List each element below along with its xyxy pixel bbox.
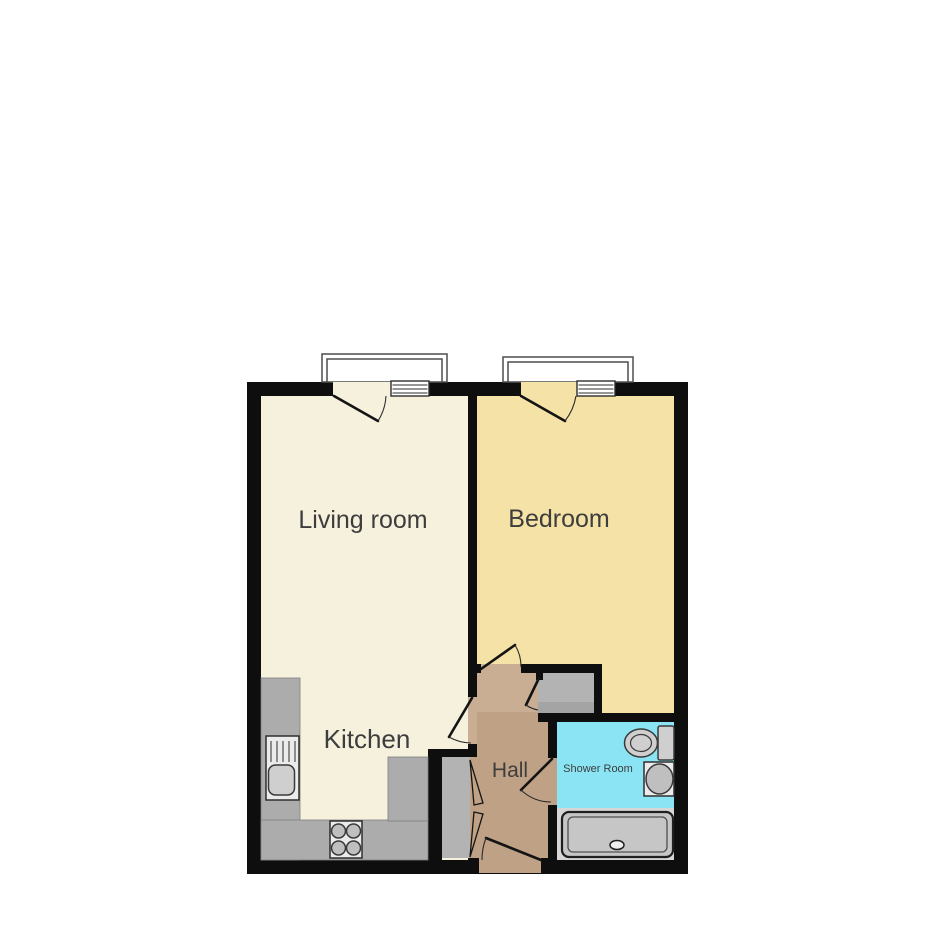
toilet bbox=[625, 726, 675, 760]
bedroom-nook-floor bbox=[602, 666, 674, 713]
kitchen-sink bbox=[266, 736, 299, 800]
shower-room-label: Shower Room bbox=[563, 763, 633, 775]
floorplan-page: Living room Bedroom Kitchen Hall Shower … bbox=[0, 0, 945, 945]
kitchen-label: Kitchen bbox=[324, 724, 411, 754]
living-room-label: Living room bbox=[298, 506, 427, 534]
airing-cupboard bbox=[442, 757, 470, 858]
sink-bowl bbox=[269, 765, 295, 795]
wash-basin bbox=[644, 762, 674, 796]
entrance-doorway-gap bbox=[479, 858, 541, 873]
bedroom-label: Bedroom bbox=[508, 505, 609, 533]
storage-cupboard-shade bbox=[538, 702, 594, 713]
hall-label: Hall bbox=[492, 759, 528, 782]
shower-drain bbox=[610, 841, 624, 850]
shower-tray bbox=[562, 812, 673, 857]
counter-right-block bbox=[388, 757, 428, 821]
shower-doorway-gap bbox=[548, 758, 557, 805]
kitchen-hob bbox=[330, 821, 362, 858]
floorplan-drawing: Living room Bedroom Kitchen Hall Shower … bbox=[0, 0, 945, 945]
